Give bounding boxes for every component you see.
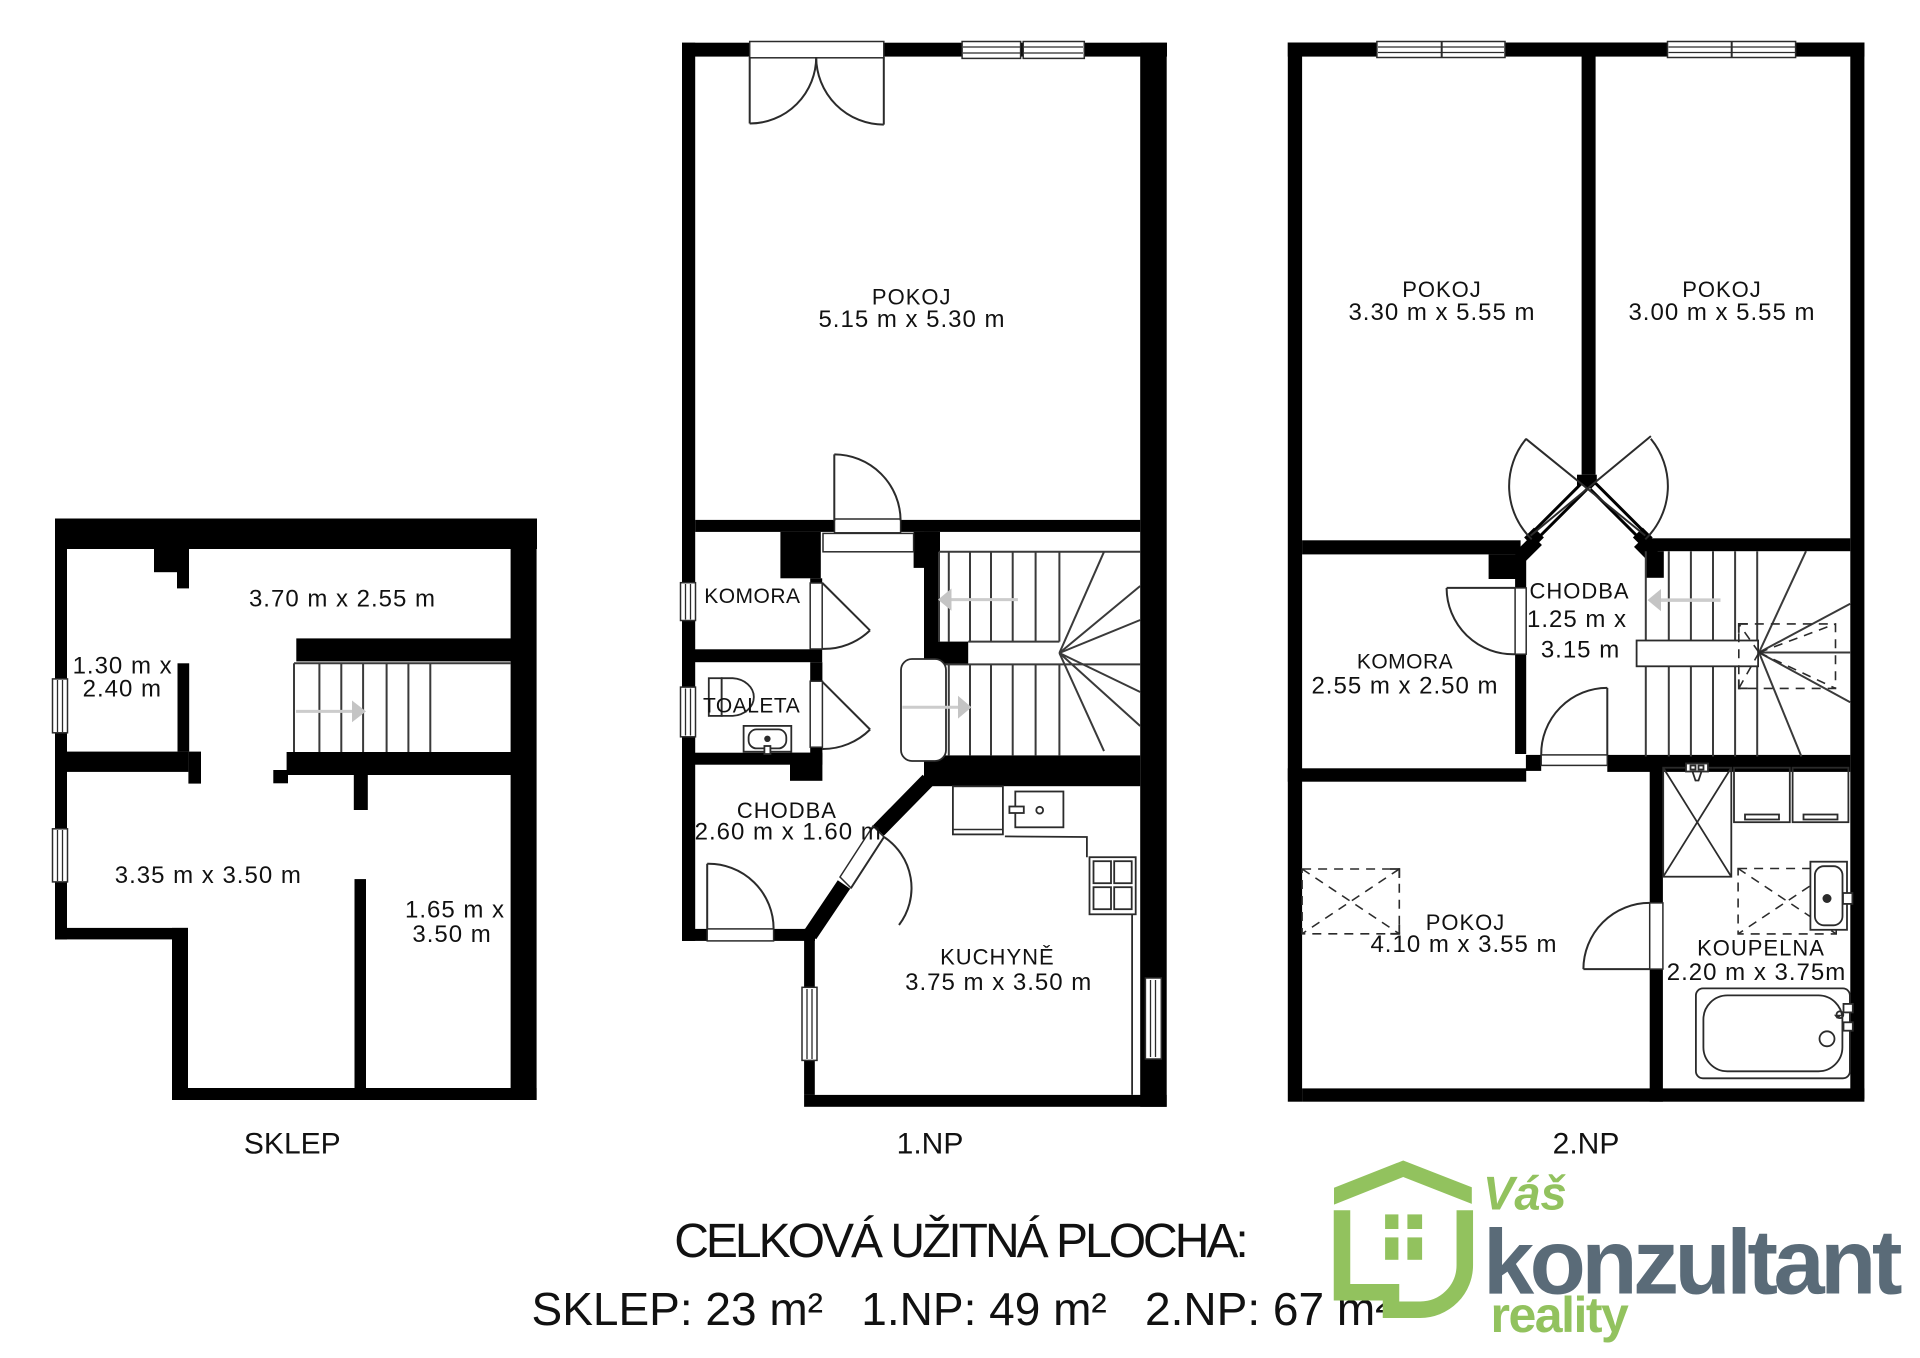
svg-text:3.00 m x 5.55 m: 3.00 m x 5.55 m — [1628, 299, 1815, 326]
svg-text:3.50 m: 3.50 m — [412, 921, 491, 948]
svg-text:3.35 m x 3.50 m: 3.35 m x 3.50 m — [115, 862, 302, 889]
svg-text:2.40 m: 2.40 m — [83, 676, 162, 703]
svg-text:2.20 m x 3.75m: 2.20 m x 3.75m — [1667, 959, 1846, 986]
svg-text:SKLEP: 23 m² 1.NP: 49 m² 2: SKLEP: 23 m² 1.NP: 49 m² 2.NP: 67 m² — [532, 1283, 1391, 1335]
svg-text:1.25 m x: 1.25 m x — [1527, 606, 1627, 633]
svg-text:KOUPELNA: KOUPELNA — [1697, 936, 1825, 961]
svg-text:KOMORA: KOMORA — [1357, 651, 1453, 674]
svg-text:SKLEP: SKLEP — [244, 1128, 341, 1161]
svg-text:reality: reality — [1491, 1287, 1630, 1343]
svg-text:1.65 m x: 1.65 m x — [405, 897, 505, 924]
svg-text:TOALETA: TOALETA — [703, 695, 800, 718]
svg-text:KUCHYNĚ: KUCHYNĚ — [940, 945, 1055, 970]
svg-text:3.70 m x 2.55 m: 3.70 m x 2.55 m — [249, 586, 436, 613]
svg-text:3.30 m x 5.55 m: 3.30 m x 5.55 m — [1348, 299, 1535, 326]
svg-text:KOMORA: KOMORA — [704, 585, 800, 608]
svg-text:3.75 m x 3.50 m: 3.75 m x 3.50 m — [905, 969, 1092, 996]
svg-text:1.NP: 1.NP — [897, 1128, 964, 1161]
svg-text:CELKOVÁ UŽITNÁ PLOCHA:: CELKOVÁ UŽITNÁ PLOCHA: — [674, 1215, 1245, 1268]
svg-text:2.60 m x 1.60 m: 2.60 m x 1.60 m — [695, 819, 882, 846]
svg-text:2.55 m x 2.50 m: 2.55 m x 2.50 m — [1311, 673, 1498, 700]
svg-text:5.15 m x 5.30 m: 5.15 m x 5.30 m — [818, 306, 1005, 333]
svg-text:CHODBA: CHODBA — [1529, 579, 1629, 604]
svg-text:2.NP: 2.NP — [1553, 1128, 1620, 1161]
svg-text:3.15 m: 3.15 m — [1541, 637, 1620, 664]
svg-text:4.10 m x 3.55 m: 4.10 m x 3.55 m — [1370, 931, 1557, 958]
